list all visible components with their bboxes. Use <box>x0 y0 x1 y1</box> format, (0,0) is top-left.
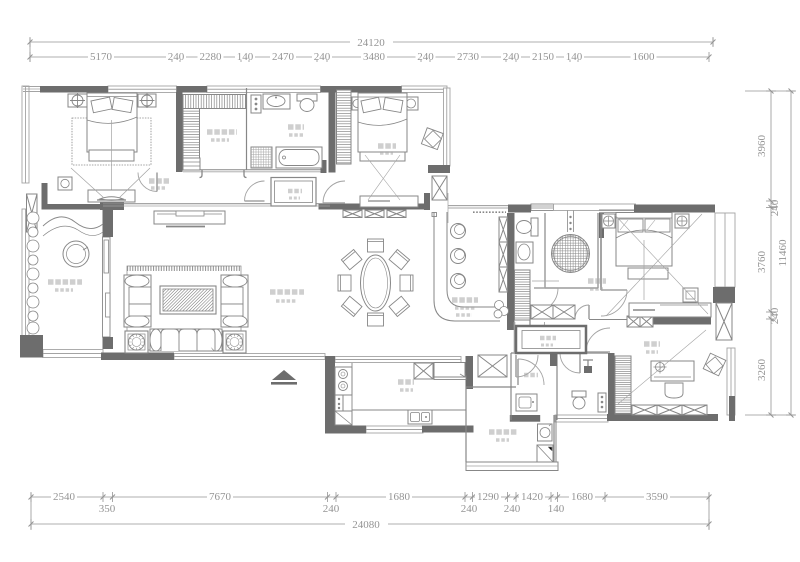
svg-text:7670: 7670 <box>209 491 232 503</box>
svg-text:3480: 3480 <box>363 51 386 63</box>
svg-text:240: 240 <box>461 503 478 515</box>
svg-text:11460: 11460 <box>777 239 789 267</box>
svg-text:1290: 1290 <box>477 491 500 503</box>
svg-text:1680: 1680 <box>571 491 594 503</box>
svg-text:3590: 3590 <box>646 491 669 503</box>
svg-text:240: 240 <box>504 503 521 515</box>
svg-text:240: 240 <box>503 51 520 63</box>
svg-text:240: 240 <box>314 51 331 63</box>
svg-text:140: 140 <box>548 503 565 515</box>
svg-text:1600: 1600 <box>633 51 656 63</box>
svg-text:140: 140 <box>566 51 583 63</box>
svg-text:3960: 3960 <box>756 135 768 158</box>
svg-text:2730: 2730 <box>457 51 480 63</box>
svg-text:240: 240 <box>769 199 781 216</box>
svg-text:3760: 3760 <box>756 251 768 274</box>
svg-text:240: 240 <box>323 503 340 515</box>
svg-text:240: 240 <box>417 51 434 63</box>
svg-text:5170: 5170 <box>90 51 113 63</box>
svg-text:2540: 2540 <box>53 491 76 503</box>
svg-text:350: 350 <box>99 503 116 515</box>
svg-text:1680: 1680 <box>388 491 411 503</box>
svg-text:1420: 1420 <box>521 491 544 503</box>
svg-text:24080: 24080 <box>352 519 380 531</box>
svg-text:2470: 2470 <box>272 51 295 63</box>
svg-text:140: 140 <box>237 51 254 63</box>
svg-text:3260: 3260 <box>756 359 768 382</box>
svg-text:2280: 2280 <box>200 51 223 63</box>
svg-text:24120: 24120 <box>357 37 385 49</box>
svg-text:2150: 2150 <box>532 51 555 63</box>
svg-text:240: 240 <box>168 51 185 63</box>
svg-text:240: 240 <box>769 307 781 324</box>
